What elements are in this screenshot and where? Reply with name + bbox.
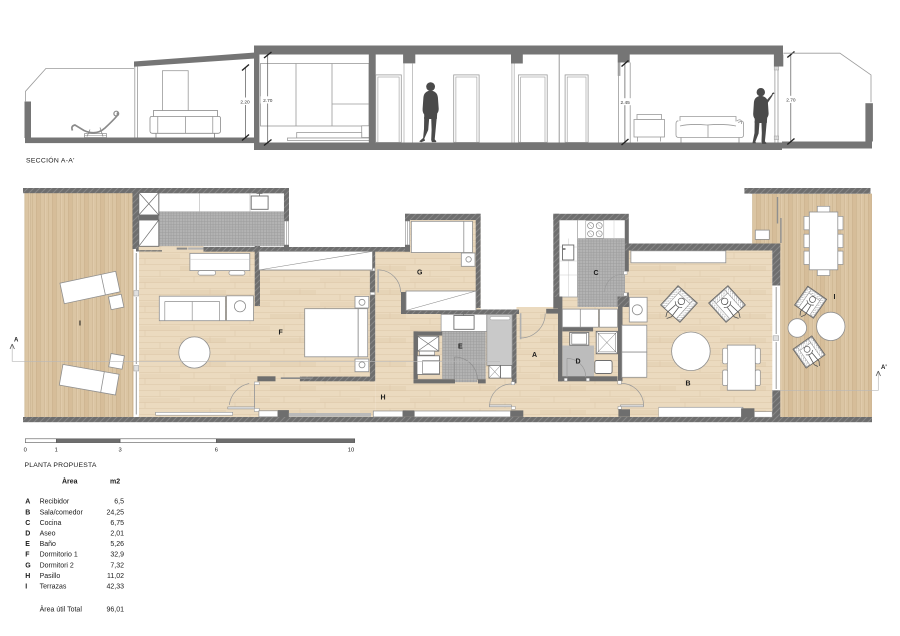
svg-text:11,02: 11,02 xyxy=(107,573,124,580)
svg-text:PLANTA PROPUESTA: PLANTA PROPUESTA xyxy=(25,462,97,469)
svg-text:B: B xyxy=(25,509,30,516)
svg-text:6,5: 6,5 xyxy=(114,499,124,506)
svg-text:E: E xyxy=(458,344,463,351)
svg-text:Àrea: Àrea xyxy=(62,476,78,485)
svg-text:1: 1 xyxy=(55,448,58,454)
svg-text:2,01: 2,01 xyxy=(110,531,124,538)
svg-text:0: 0 xyxy=(24,448,27,454)
svg-text:m2: m2 xyxy=(110,478,120,485)
svg-text:2.70: 2.70 xyxy=(263,98,273,104)
svg-text:Recibidor: Recibidor xyxy=(40,499,70,506)
svg-text:G: G xyxy=(25,562,31,569)
svg-text:2.20: 2.20 xyxy=(240,99,250,105)
svg-text:Aseo: Aseo xyxy=(40,531,56,538)
svg-text:Àrea útil Total: Àrea útil Total xyxy=(40,604,83,613)
svg-text:B: B xyxy=(686,380,691,387)
svg-text:F: F xyxy=(25,552,30,559)
svg-text:6: 6 xyxy=(215,448,218,454)
svg-text:H: H xyxy=(381,395,386,402)
svg-text:2.45: 2.45 xyxy=(621,100,631,106)
svg-text:7,32: 7,32 xyxy=(110,562,124,569)
svg-text:A: A xyxy=(532,352,537,359)
svg-text:G: G xyxy=(417,270,423,277)
svg-text:32,9: 32,9 xyxy=(110,552,124,559)
svg-text:Dormitorio 1: Dormitorio 1 xyxy=(40,552,78,559)
svg-text:F: F xyxy=(279,329,284,336)
svg-text:C: C xyxy=(25,520,30,527)
svg-text:I: I xyxy=(25,584,27,591)
svg-text:24,25: 24,25 xyxy=(106,509,124,516)
svg-text:Pasillo: Pasillo xyxy=(40,573,61,580)
svg-text:H: H xyxy=(25,573,30,580)
svg-text:D: D xyxy=(576,359,581,366)
svg-text:D: D xyxy=(25,531,30,538)
svg-text:E: E xyxy=(25,541,30,548)
svg-text:Dormitori 2: Dormitori 2 xyxy=(40,562,74,569)
svg-text:2.70: 2.70 xyxy=(786,98,796,104)
svg-text:Sala/comedor: Sala/comedor xyxy=(40,509,84,516)
svg-text:I: I xyxy=(79,321,81,328)
svg-text:I: I xyxy=(834,294,836,301)
svg-text:42,33: 42,33 xyxy=(106,584,124,591)
svg-text:3: 3 xyxy=(118,448,121,454)
svg-text:Terrazas: Terrazas xyxy=(40,584,67,591)
svg-text:Baño: Baño xyxy=(40,541,56,548)
svg-text:6,75: 6,75 xyxy=(110,520,124,527)
svg-text:A: A xyxy=(14,338,19,344)
svg-text:10: 10 xyxy=(348,448,354,454)
svg-text:SECCIÓN A-A': SECCIÓN A-A' xyxy=(26,156,75,165)
svg-text:96,01: 96,01 xyxy=(106,606,124,613)
svg-text:A: A xyxy=(25,499,30,506)
svg-text:C: C xyxy=(594,270,599,277)
svg-text:Cocina: Cocina xyxy=(40,520,62,527)
svg-text:5,26: 5,26 xyxy=(110,541,124,548)
svg-text:A': A' xyxy=(881,365,887,371)
